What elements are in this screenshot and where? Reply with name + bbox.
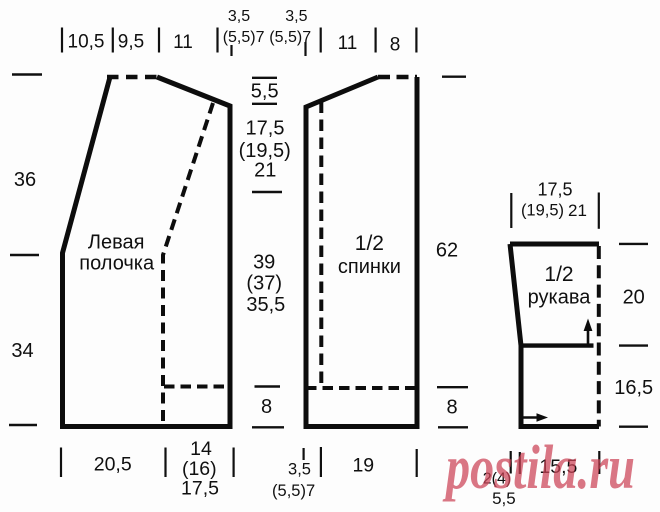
svg-text:34: 34 [11, 340, 33, 362]
svg-text:8: 8 [390, 35, 401, 56]
svg-text:Левая: Левая [88, 232, 145, 254]
svg-text:postila.ru: postila.ru [442, 434, 635, 502]
svg-text:21: 21 [254, 160, 276, 182]
svg-text:(5,5)7: (5,5)7 [272, 482, 315, 500]
svg-text:8: 8 [261, 396, 272, 418]
svg-text:16,5: 16,5 [614, 377, 653, 399]
svg-text:14: 14 [190, 438, 212, 460]
svg-text:рукава: рукава [528, 287, 592, 309]
svg-text:62: 62 [436, 239, 458, 261]
svg-text:10,5: 10,5 [68, 32, 105, 53]
svg-text:3,5: 3,5 [288, 461, 311, 479]
svg-text:5,5: 5,5 [251, 81, 279, 103]
svg-text:спинки: спинки [338, 256, 401, 278]
svg-text:11: 11 [173, 32, 193, 53]
svg-text:8: 8 [446, 397, 457, 419]
svg-text:3,5: 3,5 [228, 8, 250, 25]
svg-text:(19,5): (19,5) [521, 202, 564, 220]
svg-text:19: 19 [352, 455, 374, 477]
svg-text:полочка: полочка [79, 253, 155, 275]
svg-text:9,5: 9,5 [118, 32, 144, 53]
svg-text:20,5: 20,5 [94, 454, 132, 476]
svg-text:21: 21 [568, 201, 587, 220]
svg-text:(5,5)7: (5,5)7 [223, 29, 265, 46]
svg-text:11: 11 [338, 33, 358, 54]
svg-text:35,5: 35,5 [246, 294, 285, 316]
svg-text:36: 36 [14, 169, 36, 191]
svg-text:1/2: 1/2 [544, 263, 573, 286]
svg-text:39: 39 [253, 252, 275, 274]
svg-text:1/2: 1/2 [355, 232, 384, 255]
svg-text:(5,5)7: (5,5)7 [269, 29, 311, 46]
svg-text:20: 20 [623, 286, 645, 308]
svg-text:3,5: 3,5 [285, 8, 307, 25]
svg-text:17,5: 17,5 [246, 118, 285, 140]
svg-text:17,5: 17,5 [181, 477, 219, 499]
svg-text:(37): (37) [246, 273, 282, 295]
svg-text:17,5: 17,5 [537, 180, 572, 200]
